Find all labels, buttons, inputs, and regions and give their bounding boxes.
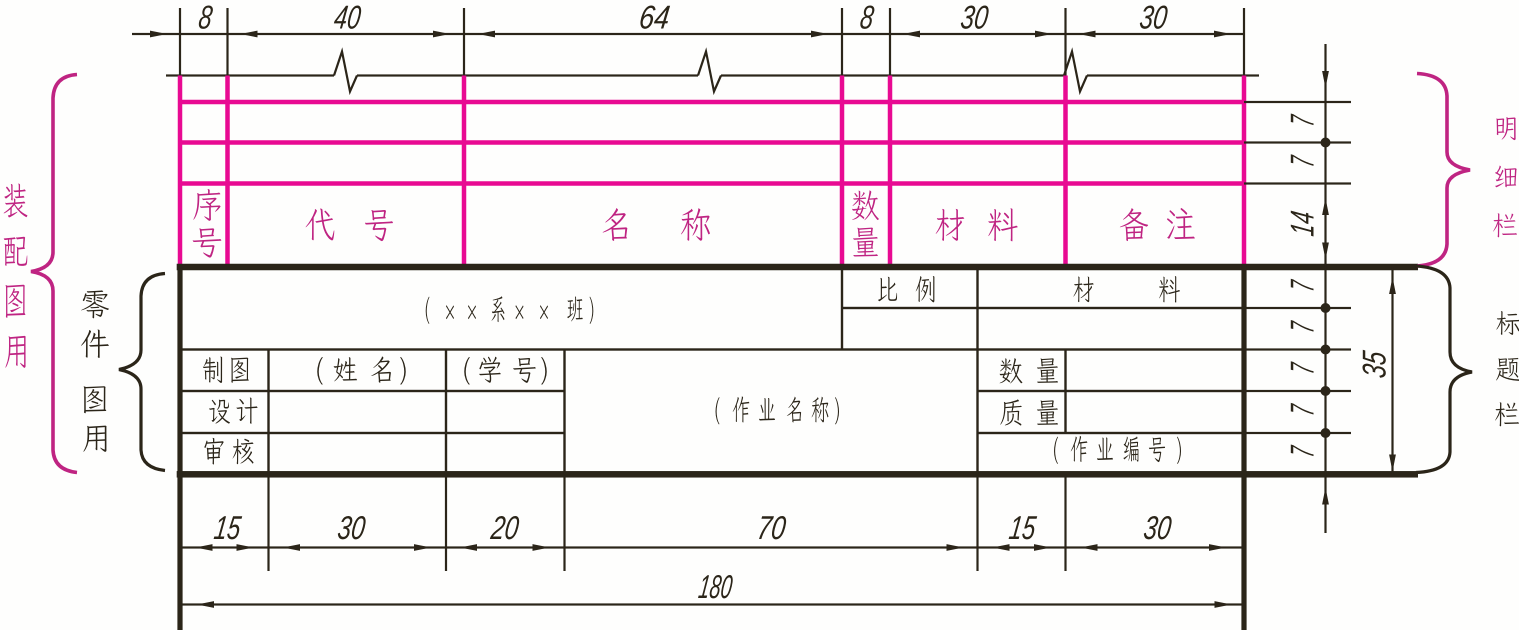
svg-text:14: 14 bbox=[1285, 209, 1322, 238]
svg-text:64: 64 bbox=[637, 0, 672, 36]
svg-text:8: 8 bbox=[196, 0, 215, 36]
svg-text:7: 7 bbox=[1285, 278, 1322, 294]
svg-text:7: 7 bbox=[1285, 360, 1322, 376]
svg-text:70: 70 bbox=[755, 510, 789, 547]
svg-text:7: 7 bbox=[1285, 443, 1322, 459]
svg-text:35: 35 bbox=[1357, 349, 1394, 381]
svg-text:30: 30 bbox=[1137, 0, 1170, 36]
svg-text:30: 30 bbox=[958, 0, 991, 36]
svg-text:20: 20 bbox=[488, 510, 521, 547]
svg-text:40: 40 bbox=[332, 0, 364, 36]
svg-text:30: 30 bbox=[1141, 510, 1174, 547]
svg-text:7: 7 bbox=[1285, 319, 1322, 335]
svg-text:15: 15 bbox=[1007, 510, 1039, 547]
svg-text:8: 8 bbox=[858, 0, 877, 36]
svg-text:7: 7 bbox=[1285, 402, 1322, 418]
svg-text:7: 7 bbox=[1285, 112, 1322, 128]
svg-text:180: 180 bbox=[696, 569, 735, 606]
svg-text:30: 30 bbox=[335, 510, 368, 547]
svg-text:15: 15 bbox=[212, 510, 244, 547]
svg-text:7: 7 bbox=[1285, 153, 1322, 169]
